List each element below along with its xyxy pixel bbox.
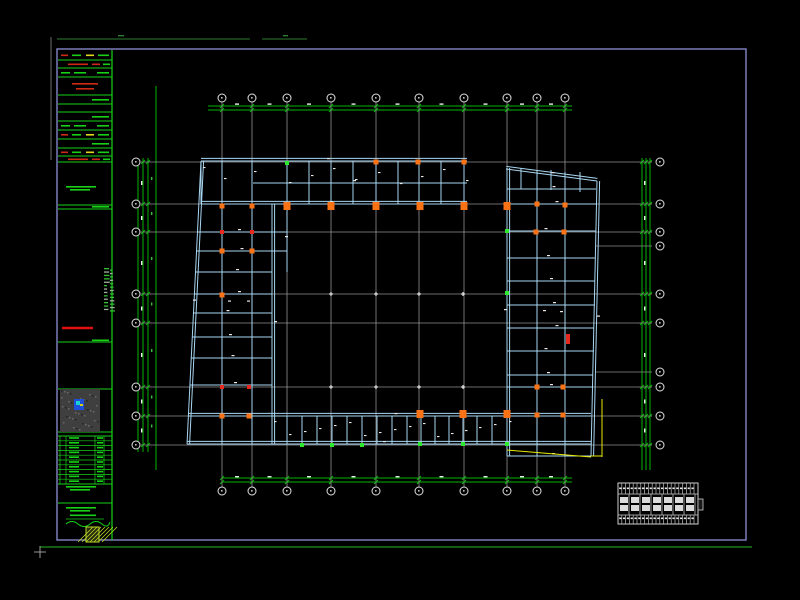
schedule-text [688,518,690,520]
site-map-thumbnail [60,389,100,432]
dim-text [141,429,142,433]
vertical-side-text [104,268,109,269]
dim-text [235,103,239,104]
beam-label [232,355,235,356]
column-marker-large [284,202,291,210]
schedule-text [672,488,674,490]
grid-bubble-label [286,490,288,492]
dim-text [440,103,444,104]
node-marker-green [505,229,509,233]
schedule-text [631,488,633,490]
beam-label [466,180,469,181]
title-strip-text [61,134,68,136]
dim-text [644,353,645,357]
grid-bubble-label [330,490,332,492]
title-strip-text [69,452,79,454]
site-map-noise [61,397,63,399]
beam-label [238,291,241,292]
schedule-text [684,518,686,520]
column-marker-red [250,230,254,234]
site-map-noise [75,419,77,421]
node-marker-green [330,443,334,447]
schedule-text-bold [631,497,639,503]
beam-label [319,428,322,429]
title-strip-text [66,186,96,188]
dim-text [141,353,142,357]
site-map-noise [79,429,81,431]
schedule-text [680,488,682,490]
grid-bubble-label [135,293,137,295]
dim-text [484,476,488,477]
column-marker-large [373,202,380,210]
title-strip-text [97,72,109,74]
column-marker-red [247,385,251,389]
dim-text [549,476,553,477]
title-strip-text [97,447,103,449]
dim-text [141,400,142,404]
site-map-noise [90,410,92,412]
title-strip-text [97,442,103,444]
vertical-side-text [104,282,110,283]
outside-dim-text [118,35,124,36]
title-strip-text [70,189,90,191]
beam-label [553,302,556,303]
beam-label [247,301,250,302]
beam-label [274,421,277,422]
dim-text [268,476,272,477]
title-strip-text [61,55,68,57]
beam-label [227,310,230,311]
grid-bubble-label [659,161,661,163]
grid-bubble-label [536,97,538,99]
title-strip-text [92,143,109,145]
site-map-noise [68,401,70,403]
beam-label [285,236,288,237]
courtyard-mark [375,385,376,389]
dim-text-green [151,425,152,428]
column-marker-red [220,230,224,234]
beam-label [378,172,381,173]
beam-label [203,167,206,168]
title-strip-text [86,134,94,136]
schedule-text [669,488,671,490]
site-map-noise [68,408,70,410]
grid-bubble-label [375,490,377,492]
beam-label [494,424,497,425]
grid-bubble-label [135,415,137,417]
schedule-text [661,518,663,520]
grid-bubble-label [135,444,137,446]
title-strip-text [92,116,109,118]
title-strip-text [69,456,79,458]
grid-bubble-label [506,490,508,492]
site-map-noise [81,414,83,416]
dim-text [307,476,311,477]
dim-text [141,261,142,265]
vertical-side-text [110,290,114,291]
title-strip-text [72,152,81,154]
schedule-text [691,518,693,520]
schedule-text-bold [642,497,650,503]
site-map-marker [76,401,80,405]
beam-label [333,168,336,169]
beam-label [224,178,227,179]
grid-bubble-label [135,386,137,388]
schedule-text-bold [686,497,694,503]
column-marker-small [220,293,225,298]
schedule-text [642,518,644,520]
schedule-text [623,488,625,490]
beam-label [395,413,398,414]
vertical-side-text [104,302,108,303]
beam-label [229,334,232,335]
schedule-tab [698,499,703,510]
schedule-text [623,518,625,520]
beam-label [479,427,482,428]
title-strip-text [70,489,90,491]
schedule-text [672,518,674,520]
beam-label [355,179,358,180]
vertical-side-text [104,278,110,279]
site-map-noise [66,416,68,418]
beam-label [543,310,546,311]
title-strip-text [97,452,103,454]
site-map-marker [80,404,83,406]
schedule-text-bold [675,497,683,503]
dim-text-green [151,212,152,215]
beam-label [545,228,548,229]
beam-label [423,423,426,424]
grid-bubble-label [564,490,566,492]
grid-bubble-label [375,97,377,99]
beam-label [228,301,231,302]
site-map-noise [84,415,86,417]
grid-bubble-label [418,97,420,99]
column-marker-small [250,249,255,254]
beam-label [409,426,412,427]
beam-label [560,311,563,312]
courtyard-mark [375,292,376,296]
vertical-side-text [104,309,108,310]
beam-label [311,175,314,176]
cad-viewport [0,0,800,600]
vertical-side-text [110,283,113,284]
schedule-text-bold [675,505,683,511]
site-map-noise [65,407,67,409]
site-map-noise [93,411,95,413]
site-map-noise [86,400,88,402]
courtyard-mark [462,292,463,296]
grid-bubble-label [221,97,223,99]
title-strip-text [69,437,79,439]
courtyard-mark [330,292,331,296]
plan-canvas [0,0,800,600]
title-strip-text [103,64,110,66]
beam-label [504,309,507,310]
grid-bubble-label [659,245,661,247]
grid-bubble-label [659,322,661,324]
beam-label [451,433,454,434]
title-strip-text [69,466,79,468]
dim-text-green [151,303,152,306]
site-map-noise [61,390,63,392]
grid-bubble-label [135,161,137,163]
schedule-text [691,488,693,490]
site-map-noise [88,425,90,427]
beam-label [545,348,548,349]
beam-label [289,434,292,435]
schedule-text [634,518,636,520]
outside-dim-text [283,35,288,36]
node-marker-green [418,442,422,446]
site-map-noise [76,428,78,430]
site-map-noise [69,417,71,419]
site-map-noise [95,396,97,398]
schedule-text [676,488,678,490]
vertical-side-text [110,307,115,308]
site-map-noise [97,421,99,423]
dim-text [396,476,400,477]
node-marker-green [285,161,289,165]
schedule-text [688,488,690,490]
highlight-red-rect [566,334,570,344]
schedule-text [638,518,640,520]
courtyard-mark [330,385,331,389]
vertical-side-text [110,276,113,277]
title-strip-text [72,55,81,57]
schedule-text [661,488,663,490]
schedule-text-bold [664,505,672,511]
schedule-text [684,488,686,490]
dim-text-green [151,177,152,180]
dim-text [307,103,311,104]
schedule-text [665,518,667,520]
beam-label [193,300,196,301]
grid-bubble-label [506,97,508,99]
vertical-side-text [110,273,113,274]
title-strip-text [76,88,94,90]
site-map-noise [67,392,69,394]
schedule-text [657,488,659,490]
column-marker-small [563,203,568,208]
grid-bubble-label [330,97,332,99]
schedule-text [619,488,621,490]
beam-label [274,321,277,322]
dim-text [644,181,645,185]
vertical-side-text [104,288,107,289]
title-strip-text [97,461,103,463]
vertical-side-text [110,310,115,311]
title-strip-text [70,515,96,517]
vertical-side-text [110,304,115,305]
grid-bubble-label [251,490,253,492]
node-marker-green [360,443,364,447]
column-marker-large [504,410,511,418]
schedule-text-bold [631,505,639,511]
dim-text [268,103,272,104]
beam-label [349,422,352,423]
grid-bubble-label [418,490,420,492]
schedule-text [642,488,644,490]
column-marker-small [535,413,540,418]
dim-text [141,216,142,220]
column-marker-large [417,410,424,418]
schedule-text [631,518,633,520]
schedule-text [646,488,648,490]
site-map-noise [72,418,74,420]
title-strip-text [61,152,68,154]
sheet-border [57,49,746,540]
vertical-side-text [110,280,113,281]
site-map-noise [91,426,93,428]
beam-label [550,384,553,385]
title-strip-text [97,456,103,458]
title-strip-text [97,476,103,478]
dim-text [644,216,645,220]
site-map-noise [96,405,98,407]
grid-bubble-label [659,293,661,295]
column-marker-small [220,414,225,419]
site-map-noise [70,393,72,395]
beam-label [241,248,244,249]
beam-label [556,325,559,326]
schedule-text-bold [620,497,628,503]
site-map-noise [71,402,73,404]
beam-label [383,441,386,442]
grid-bubble-label [463,490,465,492]
beam-label [556,201,559,202]
column-marker-small [247,414,252,419]
dim-text [644,261,645,265]
node-marker-green [461,442,465,446]
dim-text [520,103,524,104]
vertical-side-text [110,293,114,294]
title-strip-text [70,510,90,512]
schedule-text [650,518,652,520]
column-marker-small [561,413,566,418]
beam-label [421,176,424,177]
site-map-noise [92,395,94,397]
title-strip-text [69,447,79,449]
beam-label [327,158,330,159]
column-marker-small [534,230,539,235]
column-marker-large [417,202,424,210]
site-map-noise [87,409,89,411]
courtyard-mark [418,385,419,389]
courtyard-mark [462,385,463,389]
title-strip-text [92,206,109,208]
beam-label [597,316,600,317]
column-marker-large [328,202,335,210]
beam-label [552,172,555,173]
title-strip-text [66,486,96,488]
column-marker-large [461,202,468,210]
courtyard-mark [418,292,419,296]
dim-text-green [151,396,152,399]
dim-text [549,103,553,104]
dim-text [440,476,444,477]
beam-label [547,255,550,256]
grid-bubble-label [659,371,661,373]
title-strip-text [103,159,110,161]
vertical-side-text [110,270,113,271]
title-strip-text [97,437,103,439]
column-marker-red [220,385,224,389]
dim-text [141,181,142,185]
site-map-noise [63,422,65,424]
title-strip-text [97,471,103,473]
schedule-text [669,518,671,520]
vertical-side-text [104,285,107,286]
schedule-text [676,518,678,520]
beam-line [187,161,201,444]
site-map-noise [85,424,87,426]
beam-label [236,269,239,270]
grid-bubble-label [135,203,137,205]
beam-label [465,430,468,431]
beam-label [400,183,403,184]
schedule-text-bold [642,505,650,511]
beam-label [550,278,553,279]
grid-bubble-label [659,444,661,446]
site-map-noise [75,412,77,414]
site-map-noise [82,423,84,425]
schedule-text-bold [686,505,694,511]
vertical-side-text [104,271,109,272]
title-strip-text [92,340,109,342]
column-marker-small [562,230,567,235]
vertical-side-text [104,275,109,276]
dim-text [352,103,356,104]
schedule-text-bold [653,497,661,503]
vertical-side-text [104,305,108,306]
title-strip-text [98,134,109,136]
site-map-noise [78,413,80,415]
schedule-text-bold [664,497,672,503]
grid-bubble-label [564,97,566,99]
beam-label [553,186,556,187]
schedule-text [650,488,652,490]
schedule-text-bold [620,505,628,511]
beam-line [591,181,597,456]
schedule-text [657,518,659,520]
vertical-side-text [110,287,114,288]
title-strip-text [74,72,86,74]
schedule-text [619,518,621,520]
schedule-text [634,488,636,490]
title-strip-text [97,125,109,127]
schedule-text [680,518,682,520]
dim-text [520,476,524,477]
dim-text-green [151,349,152,352]
schedule-text [665,488,667,490]
beam-label [443,169,446,170]
grid-bubble-label [135,322,137,324]
schedule-text [646,518,648,520]
grid-bubble-label [221,490,223,492]
schedule-text [638,488,640,490]
column-marker-small [416,160,421,165]
beam-label [254,171,257,172]
title-strip-text [92,159,100,161]
grid-bubble-label [463,97,465,99]
title-strip-text [86,55,94,57]
grid-bubble-label [286,97,288,99]
site-map-noise [73,427,75,429]
signature-scribble [66,522,110,527]
node-marker-green [505,442,509,446]
beam-label [379,432,382,433]
